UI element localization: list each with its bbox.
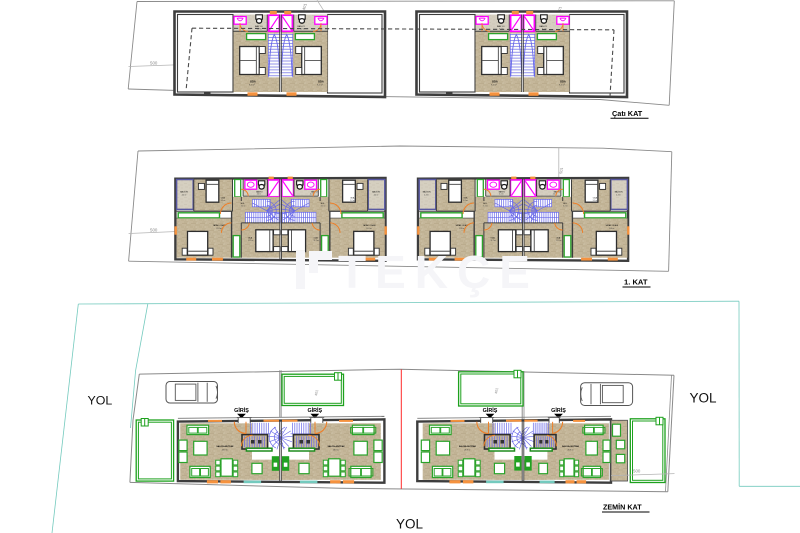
svg-text:SALON+MUTFAK: SALON+MUTFAK: [562, 445, 580, 448]
svg-text:9.4 m²: 9.4 m²: [491, 84, 497, 87]
svg-text:3.2 m²: 3.2 m²: [563, 205, 568, 208]
svg-text:YATAK ODASI: YATAK ODASI: [363, 224, 376, 227]
svg-text:9.4 m²: 9.4 m²: [559, 84, 565, 87]
svg-text:3.2 m²: 3.2 m²: [483, 205, 488, 208]
svg-text:TEKÇE: TEKÇE: [338, 246, 539, 298]
svg-text:11.2 m²: 11.2 m²: [491, 239, 497, 242]
svg-text:28.9 m²: 28.9 m²: [464, 448, 471, 451]
svg-text:BANYO: BANYO: [499, 191, 506, 194]
svg-text:SALON+MUTFAK: SALON+MUTFAK: [328, 445, 346, 448]
svg-text:4.4 m²: 4.4 m²: [182, 193, 187, 196]
svg-text:BALKON: BALKON: [180, 191, 188, 194]
svg-text:4.4 m²: 4.4 m²: [616, 193, 621, 196]
svg-text:YOL: YOL: [690, 391, 718, 406]
svg-text:500: 500: [633, 468, 641, 473]
svg-text:BALKON: BALKON: [423, 191, 431, 194]
svg-text:YOL: YOL: [88, 394, 113, 408]
svg-text:GİRİŞ: GİRİŞ: [551, 407, 566, 414]
svg-text:Çatı KAT: Çatı KAT: [612, 109, 643, 118]
svg-text:4.4 m²: 4.4 m²: [424, 193, 429, 196]
svg-text:YOL: YOL: [396, 517, 424, 532]
svg-text:BALKON: BALKON: [615, 191, 623, 194]
svg-text:ODA: ODA: [560, 79, 566, 83]
svg-text:SALON+MUTFAK: SALON+MUTFAK: [459, 445, 477, 448]
svg-text:28.9 m²: 28.9 m²: [222, 448, 229, 451]
svg-text:9.4 m²: 9.4 m²: [249, 84, 255, 87]
svg-text:3.2 m²: 3.2 m²: [241, 205, 246, 208]
svg-text:ODA: ODA: [250, 79, 256, 83]
svg-text:GİRİŞ: GİRİŞ: [234, 407, 249, 414]
svg-text:YATAK ODASI: YATAK ODASI: [605, 224, 618, 227]
svg-text:11.2 m²: 11.2 m²: [556, 239, 562, 242]
svg-text:ODA: ODA: [492, 79, 498, 83]
svg-text:11.8 m²: 11.8 m²: [366, 227, 372, 230]
svg-text:BANYO: BANYO: [256, 191, 263, 194]
svg-text:ZEMİN KAT: ZEMİN KAT: [603, 503, 642, 512]
svg-text:9.2 m²: 9.2 m²: [593, 199, 598, 202]
svg-text:28.9 m²: 28.9 m²: [333, 448, 340, 451]
svg-text:500: 500: [150, 227, 158, 232]
svg-text:GİRİŞ: GİRİŞ: [483, 407, 498, 414]
svg-text:9.2 m²: 9.2 m²: [463, 199, 468, 202]
svg-text:500: 500: [150, 61, 158, 66]
svg-text:SALON+MUTFAK: SALON+MUTFAK: [216, 445, 234, 448]
svg-text:28.9 m²: 28.9 m²: [567, 448, 574, 451]
svg-text:4.4 m²: 4.4 m²: [374, 193, 379, 196]
svg-text:11.8 m²: 11.8 m²: [609, 227, 615, 230]
svg-text:GİRİŞ: GİRİŞ: [307, 407, 322, 414]
svg-text:11.2 m²: 11.2 m²: [248, 239, 254, 242]
svg-text:ODA: ODA: [318, 79, 324, 83]
svg-text:1. KAT: 1. KAT: [624, 278, 648, 287]
svg-text:3.2 m²: 3.2 m²: [321, 205, 326, 208]
svg-text:9.4 m²: 9.4 m²: [317, 84, 323, 87]
svg-text:9.2 m²: 9.2 m²: [350, 199, 355, 202]
svg-text:BALKON: BALKON: [372, 191, 380, 194]
svg-text:11.2 m²: 11.2 m²: [314, 239, 320, 242]
svg-text:9.2 m²: 9.2 m²: [221, 199, 226, 202]
